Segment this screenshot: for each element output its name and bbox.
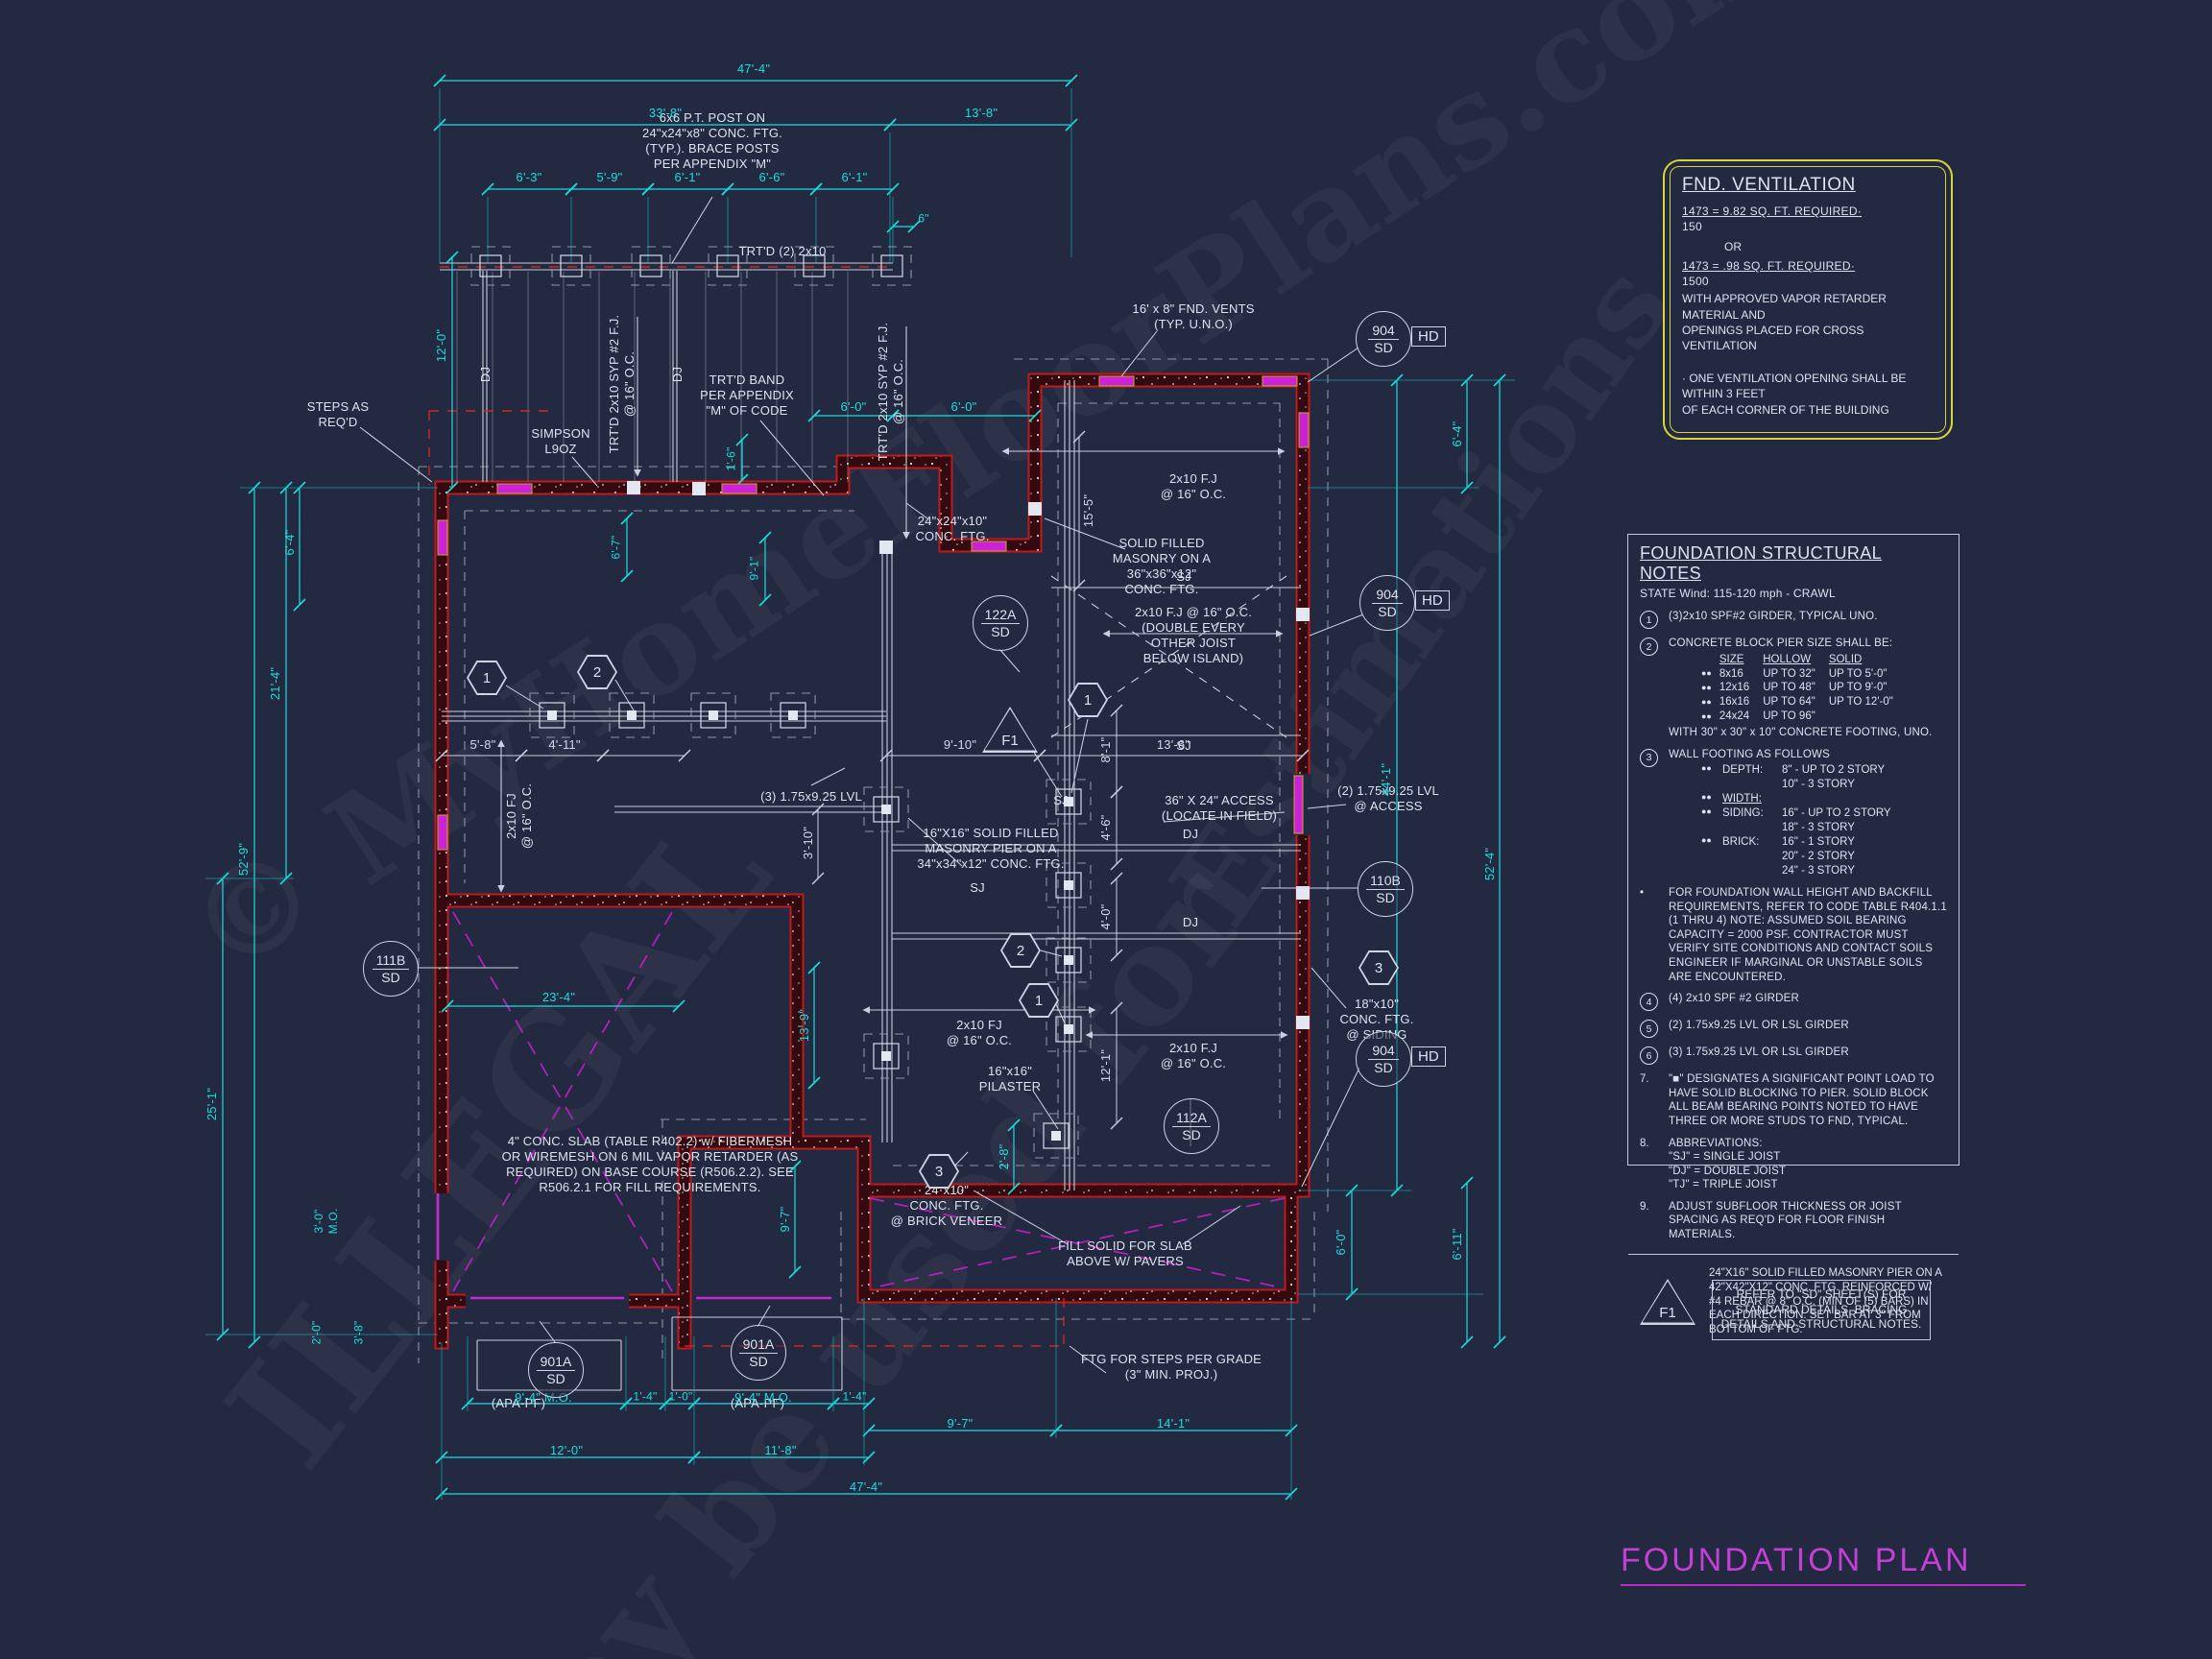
plan-note-label: 2x10 FJ @ 16" O.C. [947,1018,1012,1048]
dimension-label: 6'-0" [1334,1230,1349,1256]
plan-note-label: 2x10 F.J @ 16" O.C. [1161,471,1226,502]
dimension-label: 47'-4" [737,61,770,77]
dimension-label: 6'-0" [951,399,977,415]
structural-note-item: 8.ABBREVIATIONS: "SJ" = SINGLE JOIST "DJ… [1640,1137,1947,1192]
vent-formula-1: 1473 = 9.82 SQ. FT. REQUIRED· [1682,204,1934,220]
girder-hex-callout-1: 1 [1068,683,1108,717]
structural-note-item: 1(3)2x10 SPF#2 GIRDER, TYPICAL UNO. [1640,610,1947,629]
pier-triangle-callout-F1: F1 [982,707,1038,753]
detail-callout-112A: 112ASD [1164,1098,1219,1154]
dimension-label: 25'-1" [204,1088,220,1120]
girder-hex-callout-2: 2 [577,655,617,689]
vent-or: OR [1724,240,1934,253]
dimension-label: 5'-9" [597,170,623,185]
dimension-label: 6'-11" [1450,1228,1465,1260]
structural-note-item: 2CONCRETE BLOCK PIER SIZE SHALL BE:SIZEH… [1640,637,1947,740]
detail-callout-904: 904SDHD [1359,575,1415,631]
structural-note-item: 9.ADJUST SUBFLOOR THICKNESS OR JOIST SPA… [1640,1200,1947,1242]
plan-note-label: SJ [1053,793,1069,808]
dimension-label: 47'-4" [850,1479,882,1495]
fnd-ventilation-inner: FND. VENTILATION 1473 = 9.82 SQ. FT. REQ… [1670,166,1946,433]
vent-formula-2-denominator: 1500 [1682,275,1934,290]
structural-note-item: 4(4) 2x10 SPF #2 GIRDER [1640,992,1947,1011]
dimension-label: 1'-0" [669,1390,693,1405]
dimension-label: 1'-4" [843,1390,867,1405]
dimension-label: 6'-1" [675,170,701,185]
plan-note-label: SJ [1176,569,1191,585]
plan-note-label: (3) 1.75x9.25 LVL [760,789,862,805]
dimension-label: 9'-1" [748,557,762,581]
fnd-ventilation-title: FND. VENTILATION [1682,175,1934,196]
structural-note-item: 6(3) 1.75x9.25 LVL OR LSL GIRDER [1640,1046,1947,1065]
dimension-label: 13'-9" [797,1009,812,1042]
dimension-label: 6'-0" [841,399,867,415]
structural-notes-title: FOUNDATION STRUCTURAL NOTES [1640,543,1947,584]
plan-note-label: TRT'D 2x10 SYP #2 F.J. @ 16" O.C. [876,323,906,461]
plan-note-label: TRT'D (2) 2x10 [738,244,826,259]
plan-note-label: 24"x10" CONC. FTG. @ BRICK VENEER [891,1183,1002,1229]
f1-triangle-icon: F1 [1640,1279,1695,1325]
dimension-label: 6" [918,212,928,227]
plan-note-label: 16"X16" SOLID FILLED MASONRY PIER ON A 3… [917,826,1064,872]
girder-hex-callout-1: 1 [467,661,507,695]
dimension-label: 13'-8" [965,106,998,121]
dimension-label: 2'-8" [997,1144,1012,1170]
dimension-label: 4'-11" [548,737,580,753]
structural-notes-subtitle: STATE Wind: 115-120 mph - CRAWL [1640,587,1947,600]
dimension-label: 6'-7" [610,536,624,560]
plan-note-label: FILL SOLID FOR SLAB ABOVE W/ PAVERS [1058,1238,1192,1269]
plan-note-label: DJ [1183,827,1198,842]
dimension-label: 6'-4" [1450,421,1465,447]
structural-note-item: 7."■" DESIGNATES A SIGNIFICANT POINT LOA… [1640,1072,1947,1128]
girder-hex-callout-1: 1 [1019,983,1059,1018]
structural-note-item: 3WALL FOOTING AS FOLLOWS●●DEPTH:8" - UP … [1640,748,1947,878]
dimension-label: 4'-0" [1098,904,1114,930]
detail-callout-904: 904SDHD [1356,311,1411,367]
dimension-label: 33'-8" [649,106,682,121]
hd-tag: HD [1411,1046,1446,1067]
plan-note-label: SIMPSON L9OZ [531,426,589,457]
plan-note-label: DJ [670,367,685,382]
dimension-label: 6'-6" [759,170,785,185]
dimension-label: 1'-6" [725,447,739,471]
dimension-label: 6'-4" [282,530,298,556]
hd-tag: HD [1411,326,1446,347]
dimension-label: 12'-0" [550,1443,583,1458]
dimension-label: 13'-6" [1157,737,1190,753]
dimension-label: 1'-4" [634,1390,658,1405]
plan-note-label: STEPS AS REQ'D [307,399,369,430]
detail-callout-904: 904SDHD [1356,1031,1411,1087]
plan-note-label: FTG FOR STEPS PER GRADE (3" MIN. PROJ.) [1081,1352,1262,1382]
girder-hex-callout-3: 3 [1358,950,1399,985]
plan-note-label: 4" CONC. SLAB (TABLE R402.2) w/ FIBERMES… [502,1134,799,1195]
hd-tag: HD [1415,590,1450,611]
foundation-plan-sheet: © MyHomeFloorPlans.comILLEGALMay be used… [0,0,2212,1659]
dimension-label: 12'-0" [434,329,449,362]
dimension-label: 9'-10" [944,737,976,753]
structural-notes-panel: FOUNDATION STRUCTURAL NOTES STATE Wind: … [1627,534,1960,1166]
detail-callout-110B: 110BSD [1358,861,1413,917]
plan-note-label: TRT'D BAND PER APPENDIX "M" OF CODE [700,373,794,419]
plan-note-label: SOLID FILLED MASONRY ON A 36"x36"x12" CO… [1113,536,1211,597]
plan-note-label: TRT'D 2x10 SYP #2 F.J. @ 16" O.C. [607,315,637,453]
dimension-label: 3'-0" M.O. [312,1209,341,1235]
vent-note: WITH APPROVED VAPOR RETARDER MATERIAL AN… [1682,291,1934,353]
dimension-label: 4'-6" [1098,815,1114,841]
plan-note-label: DJ [1183,915,1198,930]
structural-note-item: •FOR FOUNDATION WALL HEIGHT AND BACKFILL… [1640,886,1947,984]
structural-note-item: 5(2) 1.75x9.25 LVL OR LSL GIRDER [1640,1019,1947,1038]
dimension-label: 3'-10" [801,827,816,859]
dimension-label: 5'-8" [470,737,496,753]
detail-callout-901A: 901ASD [528,1342,584,1398]
dimension-label: 8'-1" [1098,737,1114,763]
plan-note-label: SJ [970,880,985,896]
girder-hex-callout-2: 2 [1000,933,1041,968]
dimension-label: 21'-4" [268,667,283,700]
dimension-label: 6'-3" [517,170,542,185]
dimension-label: 44'-1" [1379,763,1394,796]
dimension-label: 11'-8" [764,1443,796,1458]
dimension-label: 14'-1" [1157,1416,1190,1431]
dimension-label: 9'-7" [778,1207,793,1233]
sd-reference-note: REFER TO "SD" SHEET(S) FOR STANDARD DETA… [1712,1280,1931,1340]
plan-note-label: 16"x16" PILASTER [979,1064,1041,1094]
dimension-label: 12'-1" [1098,1049,1114,1082]
vent-bullet-note: · ONE VENTILATION OPENING SHALL BE WITHI… [1682,371,1934,418]
dimension-label: 2'-0" [310,1321,325,1345]
dimension-label: 9'-4" M.O. [734,1390,792,1406]
vent-formula-1-denominator: 150 [1682,220,1934,235]
vent-formula-2: 1473 = .98 SQ. FT. REQUIRED· [1682,259,1934,275]
dimension-label: 9'-7" [948,1416,974,1431]
plan-note-label: DJ [478,367,493,382]
detail-callout-901A: 901ASD [731,1325,786,1381]
fnd-ventilation-panel: FND. VENTILATION 1473 = 9.82 SQ. FT. REQ… [1663,159,1953,440]
plan-note-label: 2x10 F.J @ 16" O.C. (DOUBLE EVERY OTHER … [1135,605,1252,666]
dimension-label: 3'-8" [352,1321,367,1345]
plan-note-label: 2x10 F.J @ 16" O.C. [1161,1041,1226,1071]
dimension-label: 6'-1" [842,170,868,185]
dimension-label: 52'-4" [1482,848,1498,880]
dimension-label: 52'-9" [236,843,252,876]
detail-callout-111B: 111BSD [363,941,419,997]
dimension-label: 15'-5" [1081,494,1096,527]
plan-note-label: 16' x 8" FND. VENTS (TYP. U.N.O.) [1132,301,1254,332]
structural-notes-list: 1(3)2x10 SPF#2 GIRDER, TYPICAL UNO.2CONC… [1640,610,1947,1250]
plan-note-label: 24"x24"x10" CONC. FTG. [915,514,989,544]
plan-note-label: 2x10 FJ @ 16" O.C. [504,783,535,849]
detail-callout-122A: 122ASD [973,595,1028,651]
dimension-label: 23'-4" [542,990,575,1005]
plan-note-label: 36" X 24" ACCESS (LOCATE IN FIELD) [1162,793,1277,824]
sheet-title: FOUNDATION PLAN [1621,1542,2026,1586]
